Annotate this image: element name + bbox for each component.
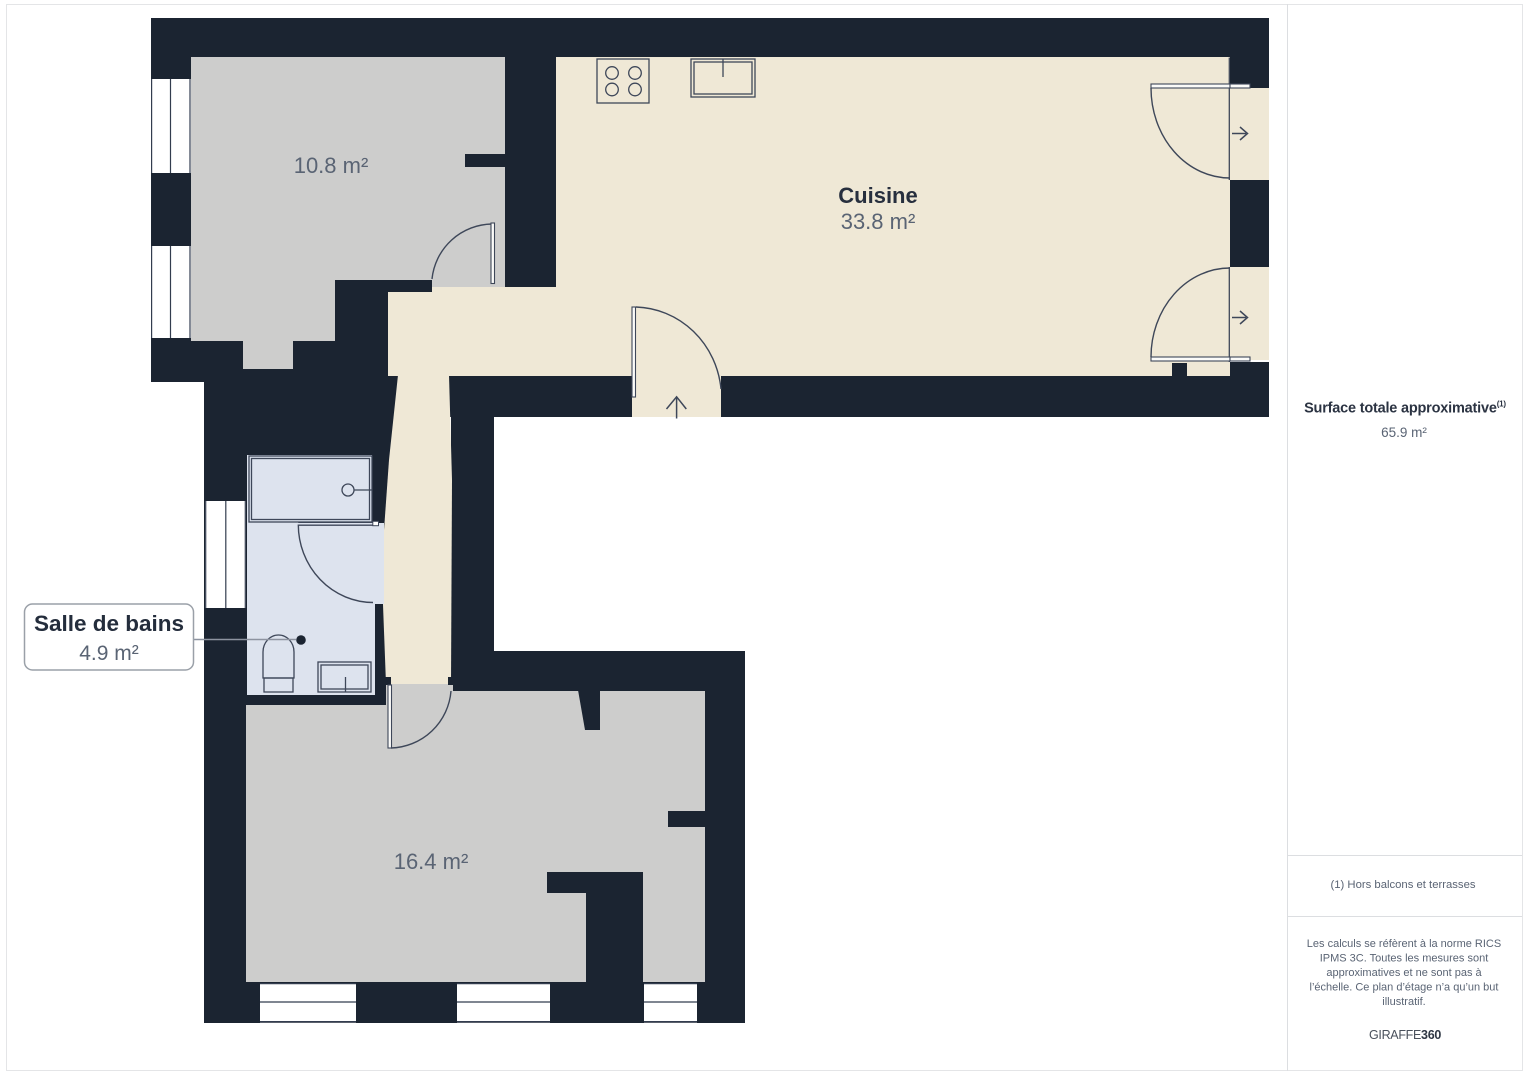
- svg-text:approximatives et ne sont pas: approximatives et ne sont pas à: [1326, 967, 1482, 979]
- svg-text:Cuisine: Cuisine: [838, 183, 917, 208]
- svg-text:GIRAFFE360: GIRAFFE360: [1369, 1028, 1441, 1042]
- svg-text:l’échelle. Ce plan d’étage n’a: l’échelle. Ce plan d’étage n’a qu’un but: [1310, 982, 1499, 994]
- svg-text:IPMS 3C. Toutes les mesures so: IPMS 3C. Toutes les mesures sont: [1320, 953, 1489, 965]
- svg-text:16.4 m²: 16.4 m²: [394, 849, 469, 874]
- svg-text:Salle de bains: Salle de bains: [34, 611, 184, 636]
- svg-text:Les calculs se réfèrent à la n: Les calculs se réfèrent à la norme RICS: [1307, 938, 1501, 950]
- svg-text:4.9 m²: 4.9 m²: [79, 642, 139, 665]
- svg-text:(1) Hors balcons et terrasses: (1) Hors balcons et terrasses: [1330, 879, 1475, 891]
- svg-text:65.9 m²: 65.9 m²: [1381, 425, 1427, 440]
- svg-text:33.8 m²: 33.8 m²: [841, 209, 916, 234]
- svg-text:Surface totale approximative(1: Surface totale approximative(1): [1304, 400, 1506, 417]
- svg-text:10.8 m²: 10.8 m²: [294, 153, 369, 178]
- svg-text:illustratif.: illustratif.: [1382, 996, 1425, 1008]
